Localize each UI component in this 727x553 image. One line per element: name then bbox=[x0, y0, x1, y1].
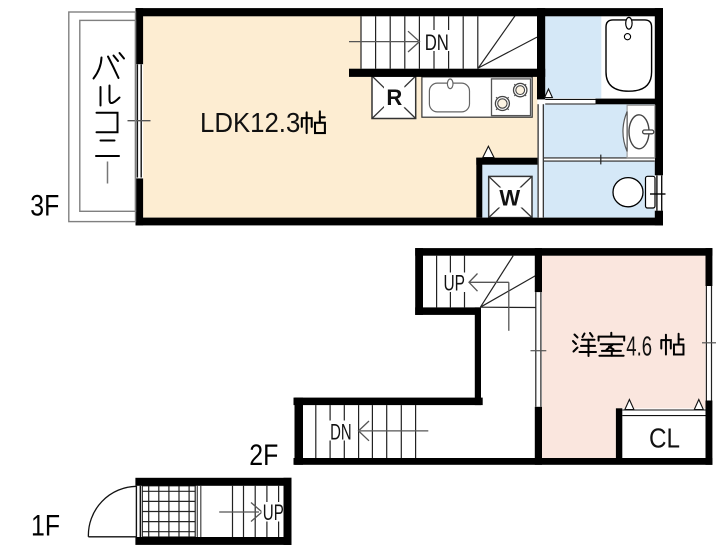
svg-text:R: R bbox=[386, 85, 402, 110]
svg-text:3F: 3F bbox=[30, 189, 59, 222]
svg-text:LDK12.3: LDK12.3 bbox=[200, 107, 300, 138]
svg-text:UP: UP bbox=[263, 500, 284, 525]
svg-text:DN: DN bbox=[425, 30, 449, 55]
svg-text:UP: UP bbox=[444, 270, 466, 295]
svg-text:2F: 2F bbox=[249, 439, 278, 472]
svg-text:DN: DN bbox=[330, 420, 352, 445]
svg-text:CL: CL bbox=[649, 423, 680, 454]
svg-text:W: W bbox=[499, 185, 520, 210]
svg-text:1F: 1F bbox=[31, 510, 60, 543]
svg-text:4.6: 4.6 bbox=[626, 330, 652, 361]
